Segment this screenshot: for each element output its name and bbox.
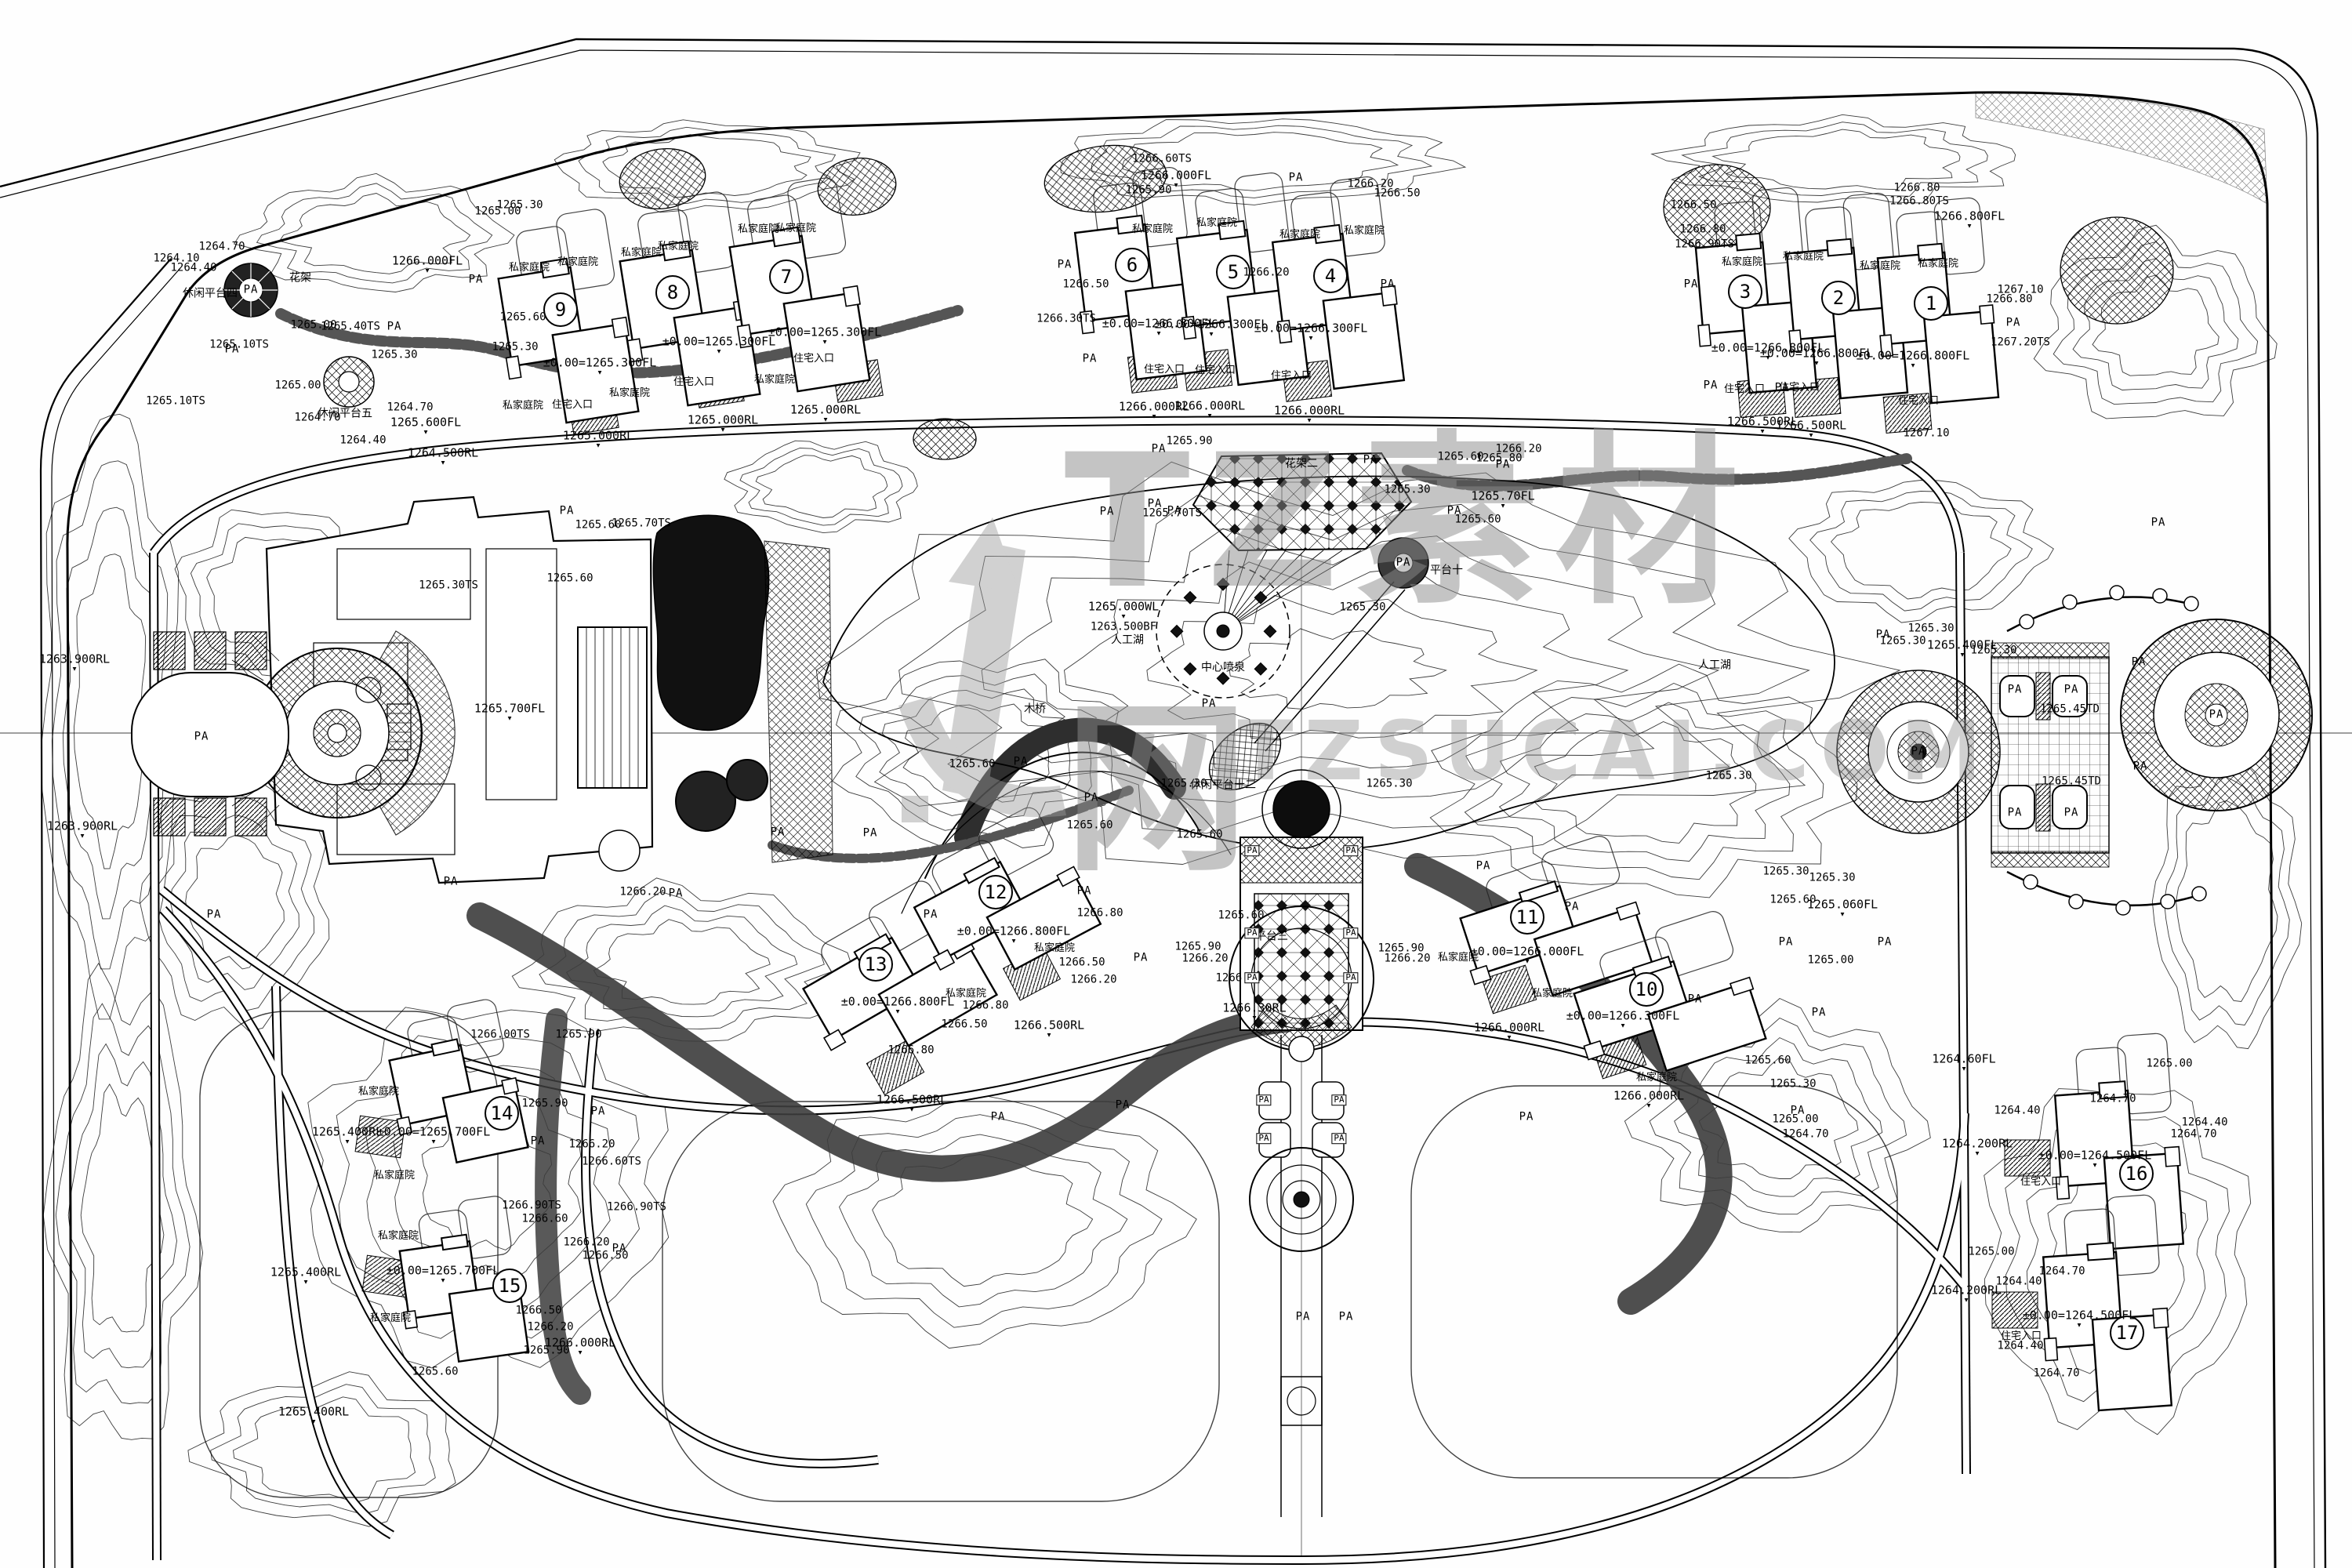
contour-label: 1265.30TS [419,580,478,592]
text-label: 住宅入口 [793,354,834,365]
text-label: 私家庭院 [1196,218,1237,229]
building-14-level-label: ±0.00=1265.700FL [377,1127,491,1145]
planting-area-label: PA [1077,886,1092,898]
building-2-badge: 2 [1821,281,1856,315]
contour-label: 1264.70 [387,402,433,414]
contour-label: 1266.80 [962,1000,1008,1012]
contour-label: 1265.30 [371,350,417,361]
text-label: 住宅入口 [1195,365,1236,376]
planting-area-label: PA [1116,1100,1131,1112]
planting-area-label: PA [1289,172,1304,184]
planting-area-label: PA [1704,380,1719,392]
contour-label: 1266.20 [1181,953,1228,965]
planting-area-label: PA [2064,684,2079,696]
planting-area-label: PA [531,1136,546,1148]
contour-label: 1266.80 [1679,224,1726,236]
planting-area-label: PA [1339,1312,1354,1323]
contour-label: 1265.10TS [146,396,205,408]
contour-label: 1265.45TD [2040,704,2100,716]
planting-area-label: PA [2064,808,2079,819]
contour-label: 1264.70 [1782,1129,1828,1141]
contour-label: 1265.30 [1339,602,1385,614]
site-plan-canvas: TZ素材网 TZSUCAI.COM 9±0.00=1265.300FL8±0.0… [0,0,2352,1568]
building-9-badge: 9 [543,292,578,327]
contour-label: 1265.60 [499,312,546,324]
contour-label: 1265.60 [412,1367,458,1378]
floor-level-label: 1266.000FL [1141,170,1211,188]
floor-level-label: 1265.700FL [474,703,545,721]
road-level-label: 1265.000RL [688,415,758,433]
contour-label: 1264.70 [198,241,245,253]
planting-area-label: PA [1152,444,1167,456]
contour-label: 1265.60 [1744,1055,1791,1067]
text-label: 私家庭院 [754,375,795,386]
floor-level-label: 1266.000FL [392,256,463,274]
contour-label: 1265.30 [492,342,538,354]
feature-label: 休闲平台四 [183,289,238,300]
feature-label: 平台三 [1255,931,1288,943]
text-label: 私家庭院 [1344,226,1385,237]
text-label: 私家庭院 [1783,252,1824,263]
building-10-badge: 10 [1629,972,1664,1007]
feature-label: 木桥 [1024,704,1046,716]
contour-label: 1264.70 [2033,1368,2079,1380]
text-label: 私家庭院 [1532,989,1573,1000]
contour-label: 1265.30 [496,200,543,212]
building-9-level-label: ±0.00=1265.300FL [543,358,657,376]
planting-area-label: PA [194,731,209,743]
road-level-label: 1264.200RL [1942,1138,2013,1156]
text-label: 私家庭院 [946,989,986,1000]
contour-label: 1266.90TS [607,1202,666,1214]
planting-area-label: PA [612,1243,627,1255]
planting-area-label: PA [863,828,878,840]
floor-level-label: 1265.000WL [1088,601,1159,619]
contour-label: 1266.50 [1062,279,1109,291]
floor-level-label: 1265.060FL [1807,899,1878,917]
contour-label: 1266.20 [1384,953,1430,965]
contour-label: 1266.80 [887,1045,934,1057]
contour-label: 1265.60 [1066,820,1112,832]
road-level-label: 1263.900RL [39,654,110,672]
planting-area-label: PA [2151,517,2166,529]
contour-label: 1265.30 [1907,623,1954,635]
planting-area-label: PA [924,909,938,921]
planting-area-label: PA [1812,1007,1827,1019]
feature-label: 花架 [289,273,311,285]
planting-area-label: PA [1775,383,1790,394]
planting-area-box-label: PA [1331,1094,1346,1105]
planting-area-label: PA [1084,793,1099,804]
contour-label: 1265.60 [1218,910,1264,922]
planting-area-label: PA [1058,260,1073,271]
planting-area-label: PA [1878,937,1893,949]
planting-area-box-label: PA [1244,972,1259,983]
floor-level-label: 1265.400FL [1927,640,1998,658]
text-label: 私家庭院 [374,1171,415,1181]
planting-area-label: PA [1363,455,1378,466]
contour-label: 1265.30 [1809,873,1855,884]
planting-area-label: PA [1447,506,1462,517]
road-level-label: 1266.500RL [1014,1020,1084,1038]
text-label: 私家庭院 [1860,261,1900,272]
text-label: 住宅入口 [2001,1331,2042,1342]
building-11-badge: 11 [1510,900,1544,935]
contour-label: 1266.20 [568,1139,615,1151]
contour-label: 1266.90TS [502,1200,561,1212]
contour-label: 1266.20 [619,887,666,898]
planting-area-box-label: PA [1244,845,1259,856]
contour-label: 1265.30 [1769,1079,1816,1091]
text-label: 私家庭院 [1918,259,1958,270]
planting-area-label: PA [1134,953,1149,964]
feature-label: 花架二 [1285,459,1318,470]
contour-label: 1266.80 [1076,908,1123,920]
contour-label: 1264.40 [339,435,386,447]
contour-label: 1266.50 [941,1019,987,1031]
building-4-badge: 4 [1313,259,1348,293]
text-label: 私家庭院 [609,388,650,399]
contour-label: 1265.90 [555,1029,601,1041]
planting-area-label: PA [1381,279,1396,291]
contour-label: 1266.60 [521,1214,568,1225]
contour-label: 1266.80TS [1889,196,1949,208]
road-level-label: 1265.400RL [312,1127,383,1145]
contour-label: 1265.60 [546,573,593,585]
planting-area-label: PA [1100,506,1115,518]
contour-label: 1266.20 [563,1237,609,1249]
contour-label: 1265.30 [1705,771,1751,782]
contour-label: 1264.40 [1995,1276,2042,1288]
road-level-label: 1264.200RL [1931,1285,2002,1303]
contour-label: 1264.70 [2038,1266,2085,1278]
planting-area-label: PA [591,1106,606,1118]
road-level-label: 1263.900RL [47,821,118,839]
road-level-label: 1266.500RL [1776,420,1846,438]
contour-label: 1265.40TS [321,321,380,333]
road-level-label: 1265.400RL [270,1267,341,1285]
contour-label: 1266.20 [1243,267,1289,279]
contour-label: 1265.70TS [612,518,671,530]
contour-label: 1265.45TD [2042,776,2101,788]
contour-label: 1266.20 [527,1322,573,1334]
planting-area-label: PA [1791,1105,1806,1117]
planting-area-label: PA [225,344,240,356]
planting-area-label: PA [244,285,259,296]
contour-label: 1265.00 [1807,955,1853,967]
text-label: 私家庭院 [378,1231,419,1242]
road-level-label: 1266.000RL [1613,1091,1684,1109]
building-3-badge: 3 [1728,274,1762,309]
contour-label: 1266.80 [1893,183,1940,194]
floor-level-label: 1265.70FL [1471,491,1534,509]
planting-area-label: PA [669,888,684,900]
text-label: 私家庭院 [1279,230,1320,241]
text-label: 住宅入口 [552,400,593,411]
text-label: 住宅入口 [2020,1177,2061,1188]
contour-label: 1266.50 [1670,200,1716,212]
text-label: 私家庭院 [1438,953,1479,964]
planting-area-box-label: PA [1244,927,1259,938]
text-label: 私家庭院 [1132,224,1173,235]
planting-area-label: PA [1396,557,1411,569]
planting-area-label: PA [771,827,786,839]
feature-label: 人工湖 [1111,635,1144,647]
planting-area-label: PA [207,909,222,921]
building-12-badge: 12 [978,875,1013,909]
text-label: 私家庭院 [1722,257,1762,268]
road-level-label: 1266.000RL [1174,401,1245,419]
text-label: 住宅入口 [673,377,714,388]
planting-area-label: PA [560,506,575,517]
text-label: 住宅入口 [1898,396,1939,407]
road-level-label: 1266.000RL [1274,405,1345,423]
building-1-badge: 1 [1914,286,1948,321]
contour-label: 1267.20TS [1991,337,2050,349]
contour-label: 1265.30 [1384,485,1430,496]
road-level-label: 1266.500RL [877,1094,947,1112]
floor-level-label: 1265.600FL [390,417,461,435]
planting-area-label: PA [387,321,402,333]
contour-label: 1266.50 [1058,957,1105,969]
text-label: 私家庭院 [509,263,550,274]
planting-area-label: PA [2132,657,2147,669]
floor-level-label: 1266.800FL [1934,211,2005,229]
planting-area-label: PA [2008,684,2023,696]
planting-area-label: PA [1779,937,1794,949]
planting-area-box-label: PA [1331,1133,1346,1144]
planting-area-label: PA [1688,994,1703,1006]
contour-label: 1264.40 [2181,1117,2227,1129]
building-10-level-label: ±0.00=1266.300FL [1566,1011,1680,1029]
contour-label: 1265.30 [1366,779,1412,790]
planting-area-label: PA [1496,459,1511,471]
building-13-badge: 13 [858,947,893,982]
text-label: 私家庭院 [1636,1073,1677,1083]
planting-area-box-label: PA [1256,1133,1271,1144]
contour-label: 1265.90 [521,1098,568,1110]
contour-label: 1266.90TS [1675,239,1734,251]
text-label: 私家庭院 [358,1087,399,1098]
road-level-label: 1266.000RL [1474,1022,1544,1040]
contour-label: 1265.90 [1174,942,1221,953]
planting-area-label: PA [1519,1112,1534,1123]
text-label: 住宅入口 [1724,384,1765,395]
planting-area-label: PA [1167,506,1182,517]
planting-area-label: PA [1565,902,1580,913]
contour-label: 1264.40 [1994,1105,2040,1117]
building-15-level-label: ±0.00=1265.700FL [387,1265,500,1283]
feature-label: 平台十 [1430,565,1463,577]
building-8-level-label: ±0.00=1265.300FL [662,336,776,354]
contour-label: 1266.00TS [470,1029,530,1041]
feature-label: 中心喷泉 [1201,662,1245,674]
feature-label: 休闲平台十二 [1190,780,1256,792]
planting-area-label: PA [1476,861,1491,873]
floor-level-label: 1264.60FL [1932,1054,1995,1072]
planting-area-label: PA [1083,354,1098,365]
building-16-level-label: ±0.00=1264.500FL [2038,1150,2152,1168]
building-8-badge: 8 [655,275,690,310]
contour-label: 1264.70 [2089,1094,2136,1105]
planting-area-label: PA [2006,318,2021,329]
building-7-level-label: ±0.00=1265.300FL [768,327,882,345]
planting-area-label: PA [444,877,459,888]
road-level-label: 1265.400RL [278,1406,349,1425]
building-7-badge: 7 [769,260,804,294]
building-17-level-label: ±0.00=1264.500FL [2023,1310,2136,1328]
feature-label: 人工湖 [1698,660,1731,672]
labels-layer: 9±0.00=1265.300FL8±0.00=1265.300FL7±0.00… [0,0,2352,1568]
text-label: 私家庭院 [1034,943,1075,954]
building-12-level-label: ±0.00=1266.800FL [957,926,1071,944]
text-label: 私家庭院 [658,241,699,252]
text-label: 私家庭院 [370,1313,411,1324]
contour-label: 1266.20 [1070,975,1116,986]
text-label: 私家庭院 [503,401,543,412]
contour-label: 1265.00 [1968,1247,2014,1258]
contour-label: 1265.60 [1176,829,1222,841]
feature-label: 休闲平台五 [318,408,372,420]
building-1-level-label: ±0.00=1266.800FL [1857,350,1970,368]
planting-area-label: PA [469,274,484,286]
contour-label: 1266.30TS [1036,314,1096,325]
contour-label: 1267.10 [1903,428,1949,440]
planting-area-label: PA [1148,499,1163,510]
text-label: 私家庭院 [738,224,779,235]
building-13-level-label: ±0.00=1266.800FL [841,996,955,1014]
road-level-label: 1264.500RL [408,448,478,466]
road-level-label: 1266.000RL [545,1338,615,1356]
text-label: 住宅入口 [1144,365,1185,376]
text-label: 私家庭院 [775,223,816,234]
text-label: 私家庭院 [557,257,598,268]
planting-area-label: PA [2008,808,2023,819]
road-level-label: 1265.000RL [790,405,861,423]
planting-area-label: PA [991,1112,1006,1123]
contour-label: 1266.60TS [582,1156,641,1168]
contour-label: 1263.500BF [1091,622,1156,633]
contour-label: 1264.40 [170,263,216,274]
text-label: 住宅入口 [1271,371,1312,382]
planting-area-label: PA [1684,279,1699,291]
planting-area-label: PA [1014,757,1029,768]
planting-area-label: PA [1296,1312,1311,1323]
planting-area-label: PA [2133,761,2148,773]
planting-area-box-label: PA [1256,1094,1271,1105]
building-4-level-label: ±0.00=1266.300FL [1254,323,1368,341]
contour-label: 1265.60 [949,759,995,771]
contour-label: 1265.30 [1762,866,1809,878]
building-11-level-label: ±0.00=1266.000FL [1471,946,1584,964]
building-6-badge: 6 [1115,248,1149,282]
contour-label: 1266.80 [1986,294,2032,306]
contour-label: 1265.00 [2146,1058,2192,1070]
planting-area-box-label: PA [1343,927,1358,938]
planting-area-box-label: PA [1343,845,1358,856]
contour-label: 1265.90 [1166,436,1212,448]
planting-area-label: PA [2209,710,2224,721]
text-label: 私家庭院 [621,248,662,259]
contour-label: 1265.00 [274,380,321,392]
contour-label: 1266.50 [515,1305,561,1317]
planting-area-box-label: PA [1343,972,1358,983]
road-level-label: 1266.30RL [1222,1003,1286,1021]
contour-label: 1266.50 [1374,188,1420,200]
building-5-level-label: ±0.00=1266.300FL [1155,319,1269,337]
contour-label: 1264.70 [2170,1129,2216,1141]
planting-area-label: PA [1202,699,1217,710]
contour-label: 1266.60TS [1132,154,1192,165]
planting-area-label: PA [1876,630,1891,641]
road-level-label: 1265.000RL [563,430,633,448]
planting-area-label: PA [1911,746,1926,758]
